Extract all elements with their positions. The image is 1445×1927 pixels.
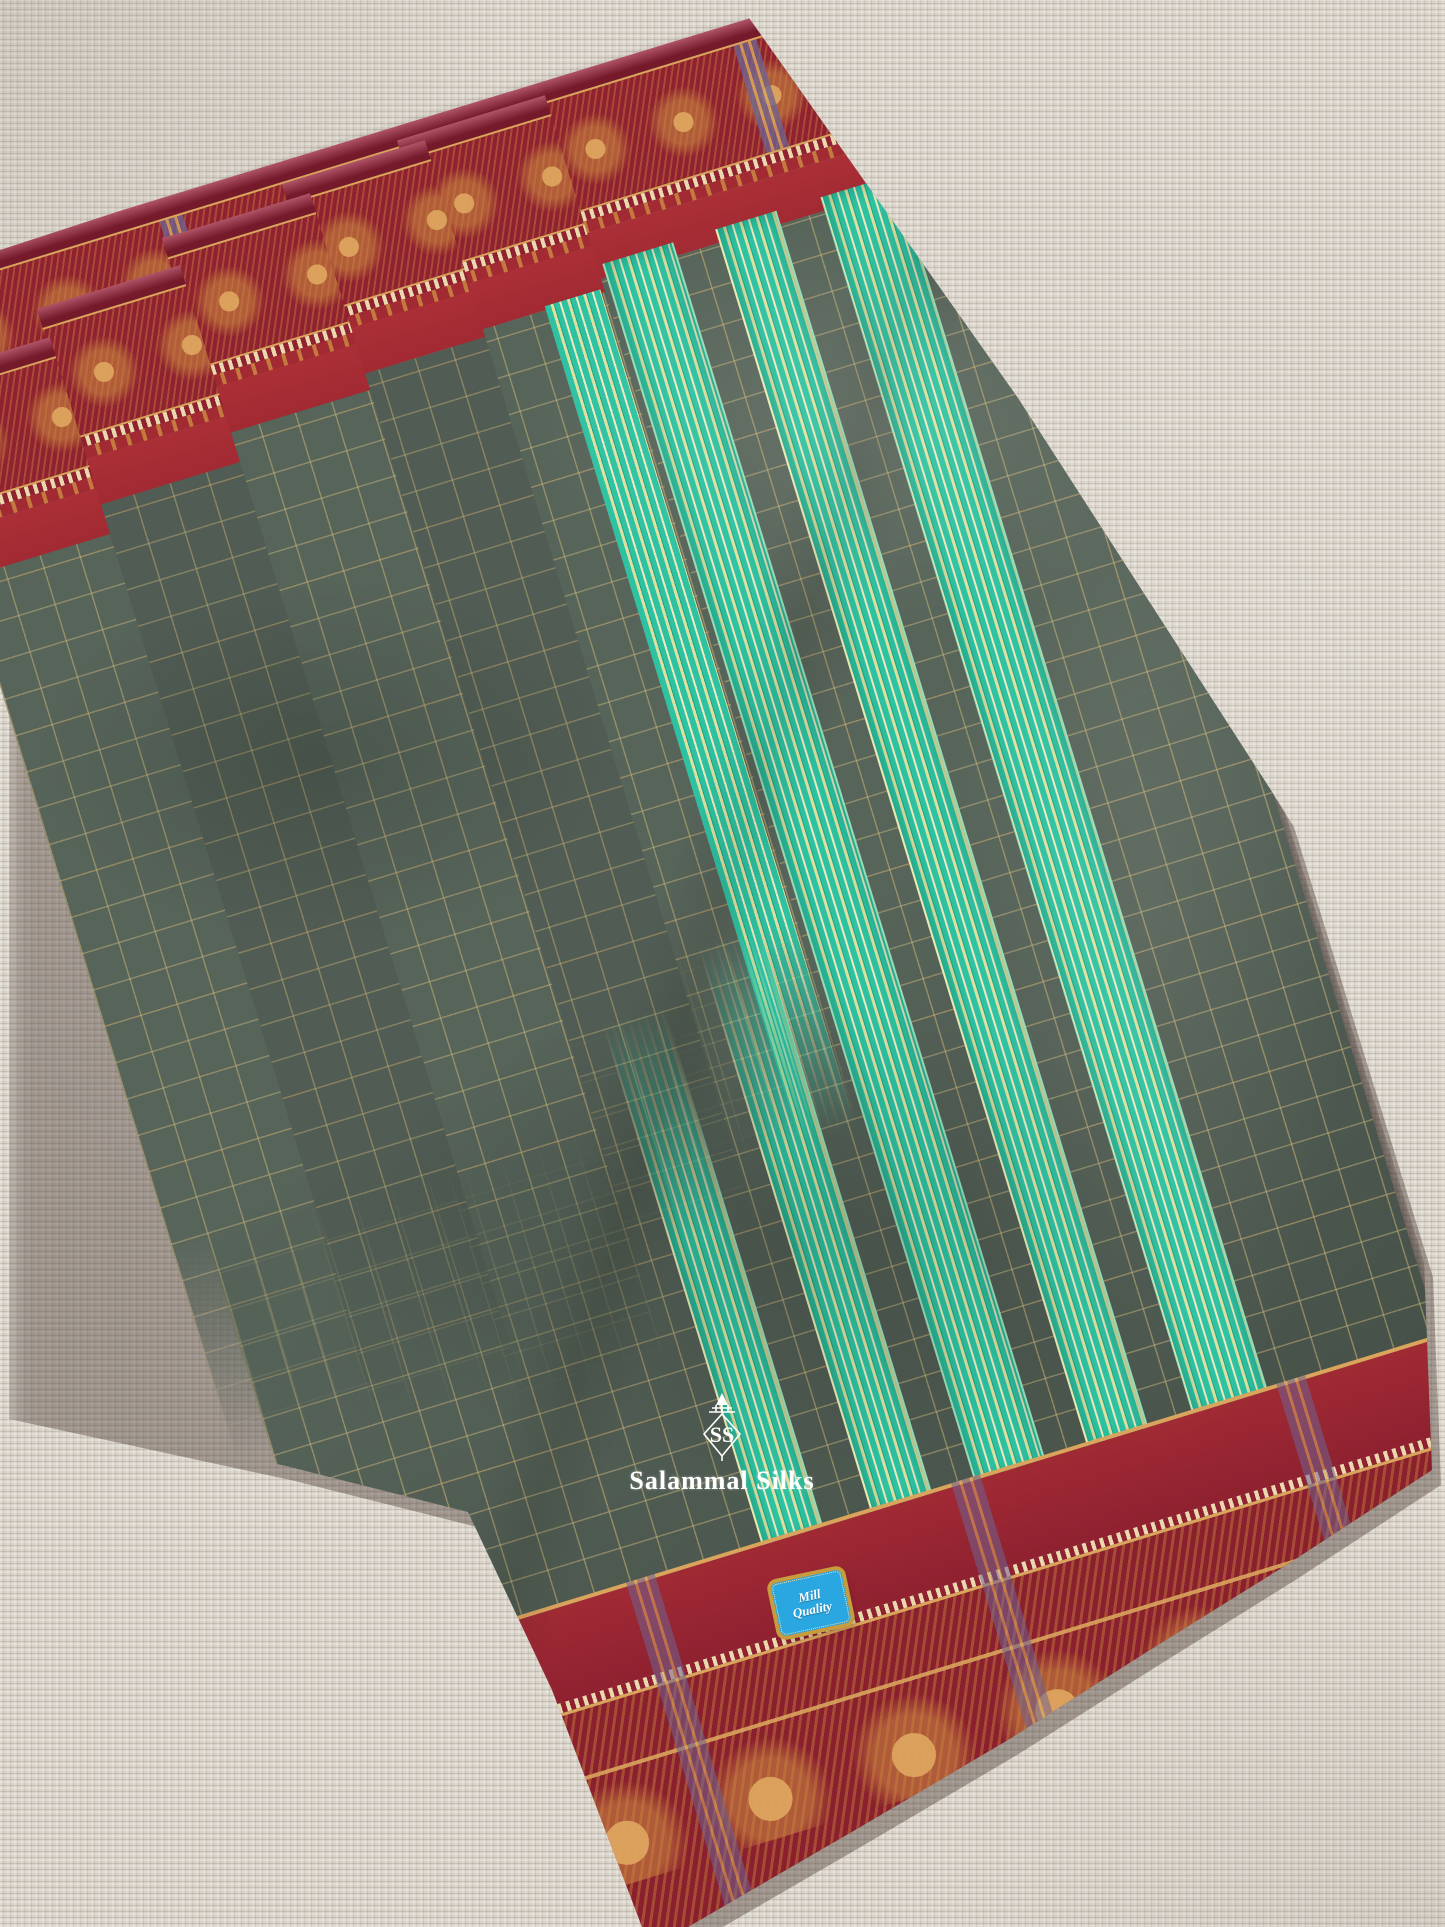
brand-monogram: SS bbox=[710, 1422, 734, 1447]
brand-logo-icon: SS bbox=[699, 1392, 745, 1462]
photo-canvas: SS Salammal Silks Mill Quality bbox=[0, 0, 1445, 1927]
brand-name-text: Salammal Silks bbox=[602, 1466, 842, 1496]
brand-watermark: SS Salammal Silks bbox=[602, 1392, 842, 1496]
sticker-line-2: Quality bbox=[792, 1599, 834, 1621]
